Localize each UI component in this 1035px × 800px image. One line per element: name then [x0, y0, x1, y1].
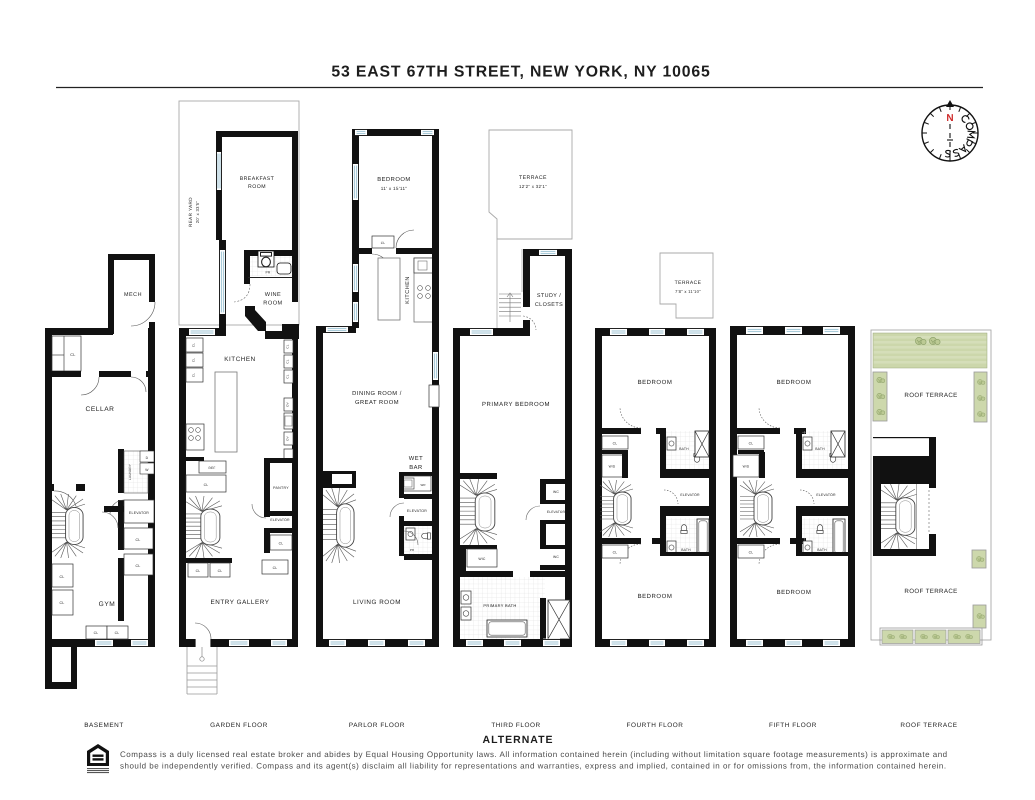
- svg-text:CL: CL: [279, 542, 284, 546]
- svg-text:TERRACE: TERRACE: [519, 175, 547, 181]
- svg-text:BREAKFAST: BREAKFAST: [240, 176, 275, 182]
- svg-text:BEDROOM: BEDROOM: [777, 379, 812, 386]
- svg-text:PR: PR: [265, 271, 270, 275]
- svg-text:ROOF TERRACE: ROOF TERRACE: [904, 588, 957, 595]
- svg-text:LAUNDRY: LAUNDRY: [128, 464, 132, 480]
- svg-text:ROOM: ROOM: [248, 184, 266, 190]
- svg-text:W: W: [145, 468, 149, 472]
- svg-text:KITCHEN: KITCHEN: [405, 276, 411, 304]
- svg-text:ELEVATOR: ELEVATOR: [407, 509, 427, 513]
- svg-text:MECH: MECH: [124, 292, 142, 298]
- svg-text:GREAT ROOM: GREAT ROOM: [355, 399, 399, 406]
- svg-text:CL: CL: [196, 569, 201, 573]
- svg-text:PANTRY: PANTRY: [273, 486, 289, 490]
- svg-text:BASEMENT: BASEMENT: [84, 722, 124, 729]
- svg-text:THIRD FLOOR: THIRD FLOOR: [491, 722, 540, 729]
- svg-text:KITCHEN: KITCHEN: [224, 356, 256, 363]
- svg-text:CL: CL: [613, 442, 618, 446]
- svg-text:GYM: GYM: [99, 601, 116, 608]
- svg-text:CL: CL: [192, 358, 196, 362]
- svg-text:CL: CL: [136, 538, 141, 542]
- svg-text:BAR: BAR: [409, 465, 422, 471]
- svg-text:WR: WR: [420, 483, 425, 487]
- svg-text:WC: WC: [553, 490, 559, 494]
- svg-text:CL: CL: [749, 551, 754, 555]
- svg-text:BEDROOM: BEDROOM: [377, 176, 410, 183]
- svg-text:CL: CL: [60, 575, 65, 579]
- svg-text:BATH: BATH: [817, 548, 827, 552]
- svg-text:CL: CL: [136, 564, 141, 568]
- svg-text:ELEVATOR: ELEVATOR: [270, 518, 290, 522]
- svg-text:ELEVATOR: ELEVATOR: [816, 493, 836, 497]
- svg-text:CL: CL: [192, 343, 196, 347]
- svg-text:OV: OV: [286, 402, 290, 407]
- svg-text:CL: CL: [204, 483, 209, 487]
- svg-text:20' x 33'5": 20' x 33'5": [195, 201, 200, 224]
- svg-text:CELLAR: CELLAR: [86, 406, 115, 413]
- svg-text:PRIMARY BATH: PRIMARY BATH: [483, 603, 516, 608]
- svg-text:12'2" x 32'1": 12'2" x 32'1": [519, 184, 547, 189]
- svg-text:BEDROOM: BEDROOM: [777, 589, 812, 596]
- svg-text:LIVING ROOM: LIVING ROOM: [353, 599, 401, 606]
- svg-text:WC: WC: [553, 555, 559, 559]
- svg-text:ELEVATOR: ELEVATOR: [129, 511, 149, 515]
- svg-text:DINING ROOM /: DINING ROOM /: [352, 390, 402, 397]
- svg-text:CL: CL: [613, 551, 618, 555]
- svg-text:OV: OV: [286, 436, 290, 441]
- svg-text:FOURTH FLOOR: FOURTH FLOOR: [627, 722, 684, 729]
- svg-text:BATH: BATH: [681, 548, 691, 552]
- svg-text:STUDY /: STUDY /: [537, 293, 561, 299]
- svg-text:should be independently verifi: should be independently verified. Compas…: [120, 762, 947, 771]
- svg-text:ALTERNATE: ALTERNATE: [482, 734, 553, 746]
- svg-text:ELEVATOR: ELEVATOR: [547, 510, 566, 514]
- svg-text:CLOSETS: CLOSETS: [535, 302, 563, 308]
- svg-text:CL: CL: [381, 241, 386, 245]
- svg-text:WET: WET: [409, 456, 423, 462]
- svg-text:ROOF TERRACE: ROOF TERRACE: [904, 392, 957, 399]
- svg-text:53 EAST 67TH STREET, NEW YORK,: 53 EAST 67TH STREET, NEW YORK, NY 10065: [331, 64, 710, 81]
- svg-text:CL: CL: [218, 569, 223, 573]
- svg-text:CL: CL: [286, 374, 290, 378]
- svg-text:W/D: W/D: [609, 465, 616, 469]
- svg-text:ENTRY GALLERY: ENTRY GALLERY: [211, 599, 270, 606]
- svg-text:FIFTH FLOOR: FIFTH FLOOR: [769, 722, 817, 729]
- svg-text:ELEVATOR: ELEVATOR: [680, 493, 700, 497]
- svg-text:7'8" x 11'10": 7'8" x 11'10": [675, 289, 701, 294]
- svg-text:CL: CL: [749, 442, 754, 446]
- svg-text:CL: CL: [60, 601, 65, 605]
- svg-text:11' x 15'11": 11' x 15'11": [381, 186, 408, 191]
- svg-text:ROOM: ROOM: [263, 301, 282, 307]
- svg-text:REAR YARD: REAR YARD: [188, 197, 193, 227]
- svg-text:BEDROOM: BEDROOM: [638, 593, 673, 600]
- svg-text:CL: CL: [70, 353, 75, 357]
- svg-text:PRIMARY BEDROOM: PRIMARY BEDROOM: [482, 401, 550, 408]
- svg-text:CL: CL: [94, 631, 99, 635]
- svg-text:D: D: [146, 456, 149, 460]
- svg-text:WIC: WIC: [478, 557, 486, 561]
- svg-text:PARLOR FLOOR: PARLOR FLOOR: [349, 722, 405, 729]
- svg-text:W/D: W/D: [743, 465, 750, 469]
- svg-text:BEDROOM: BEDROOM: [638, 379, 673, 386]
- svg-text:CL: CL: [115, 631, 120, 635]
- svg-text:TERRACE: TERRACE: [675, 280, 702, 286]
- svg-text:PR: PR: [410, 548, 414, 552]
- svg-text:BATH: BATH: [815, 447, 825, 451]
- svg-text:CL: CL: [273, 566, 278, 570]
- svg-text:WINE: WINE: [265, 292, 282, 298]
- svg-text:GARDEN FLOOR: GARDEN FLOOR: [210, 722, 268, 729]
- svg-text:N: N: [946, 113, 953, 124]
- svg-text:ROOF TERRACE: ROOF TERRACE: [900, 722, 957, 729]
- svg-text:CL: CL: [286, 344, 290, 348]
- svg-text:Compass is a duly licensed rea: Compass is a duly licensed real estate b…: [120, 750, 948, 759]
- svg-text:CL: CL: [286, 359, 290, 363]
- svg-text:CL: CL: [192, 373, 196, 377]
- svg-text:REF: REF: [209, 466, 216, 470]
- svg-text:BATH: BATH: [679, 447, 689, 451]
